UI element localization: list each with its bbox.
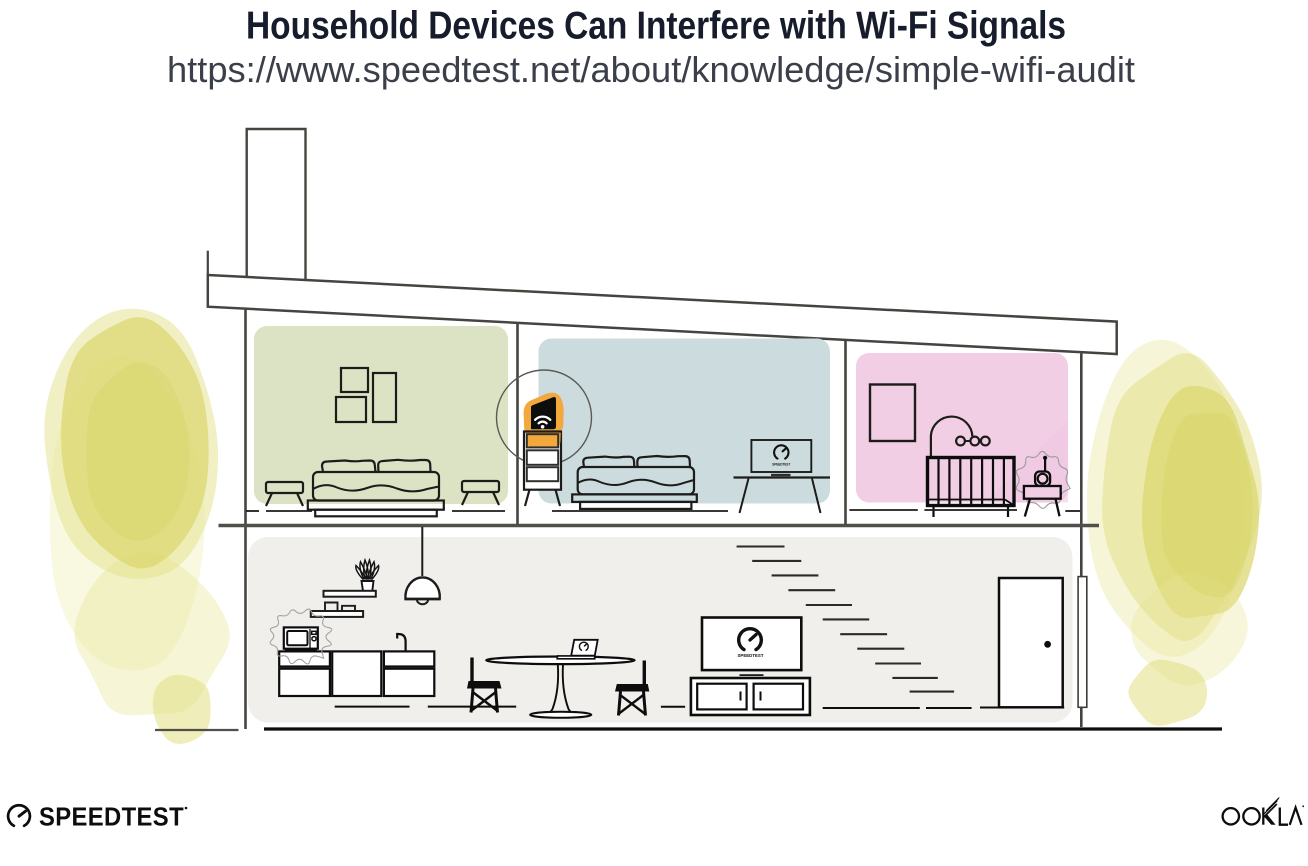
- svg-text:SPEEDTEST: SPEEDTEST: [738, 653, 764, 658]
- svg-text:https://www.speedtest.net/abou: https://www.speedtest.net/about/knowledg…: [167, 49, 1135, 90]
- svg-text:Household Devices Can Interfer: Household Devices Can Interfere with Wi-…: [246, 5, 1066, 48]
- svg-text:SPEEDTEST: SPEEDTEST: [39, 804, 184, 832]
- svg-text:SPEEDTEST: SPEEDTEST: [772, 462, 791, 466]
